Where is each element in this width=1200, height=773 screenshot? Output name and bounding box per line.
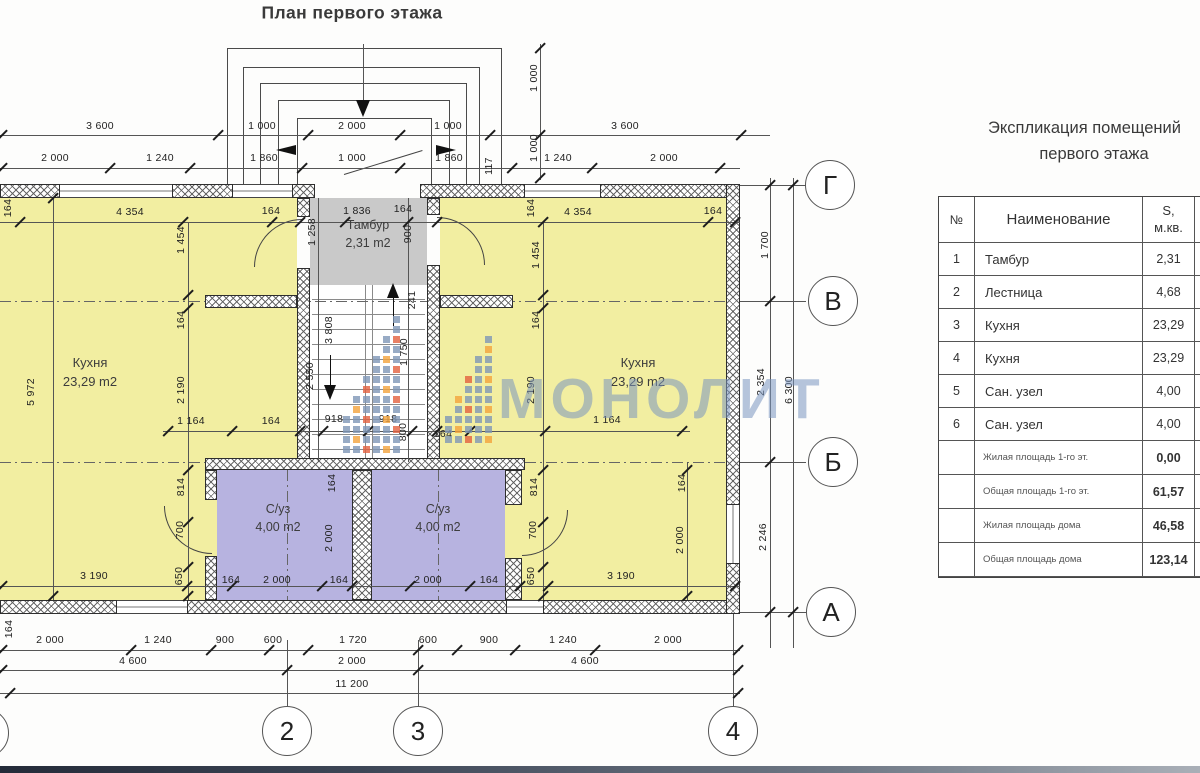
logo-pixel xyxy=(363,446,370,453)
window xyxy=(117,600,187,614)
window xyxy=(60,184,172,198)
dimension-label: 164 xyxy=(262,205,280,217)
dimension-label: 164 xyxy=(525,199,537,217)
summary-num xyxy=(939,475,975,509)
summary-name: Жилая площадь 1-го эт. xyxy=(975,441,1143,475)
logo-pixel xyxy=(485,406,492,413)
dimension-label: 164 xyxy=(175,311,187,329)
room-label-kitchen-left: Кухня 23,29 m2 xyxy=(63,354,117,392)
wall xyxy=(505,558,522,600)
dimension-label: 600 xyxy=(419,634,437,646)
logo-pixel xyxy=(465,396,472,403)
dimension-label: 2 000 xyxy=(654,634,682,646)
dimension-label: 2 190 xyxy=(175,376,187,404)
axis-circle-А: А xyxy=(806,587,856,637)
logo-pixel xyxy=(343,436,350,443)
logo-pixel xyxy=(383,376,390,383)
entrance-axis-line xyxy=(363,44,364,102)
logo-pixel xyxy=(393,396,400,403)
wall xyxy=(440,295,513,308)
dimension-label: 1 860 xyxy=(250,152,278,164)
dimension-label: 164 xyxy=(2,199,14,217)
logo-pixel xyxy=(383,396,390,403)
room-name: С/уз xyxy=(255,500,300,518)
dimension-label: 650 xyxy=(173,567,185,585)
row-num: 2 xyxy=(939,276,975,309)
logo-pixel xyxy=(353,406,360,413)
wall xyxy=(292,184,315,198)
room-label-tambour: Тамбур 2,31 m2 xyxy=(345,216,390,252)
logo-pixel xyxy=(455,416,462,423)
dim-line xyxy=(0,168,740,169)
logo-pixel xyxy=(455,426,462,433)
summary-extra xyxy=(1195,441,1200,475)
dimension-label: 1 836 xyxy=(343,205,371,217)
table-title-line2: первого этажа xyxy=(988,142,1200,168)
logo-pixel xyxy=(475,386,482,393)
logo-pixel xyxy=(383,416,390,423)
axis-line-v xyxy=(0,301,806,302)
wall xyxy=(726,184,740,505)
row-extra xyxy=(1195,342,1200,375)
col-header-area-line2: м.кв. xyxy=(1154,220,1183,236)
logo-pixel xyxy=(343,416,350,423)
axis-circle-partial xyxy=(0,708,9,758)
dimension-label: 4 600 xyxy=(571,655,599,667)
summary-extra xyxy=(1195,543,1200,577)
floor-plan-sheet: План первого этажа xyxy=(0,0,1200,773)
logo-pixel xyxy=(393,366,400,373)
dimension-label: 2 000 xyxy=(674,526,686,554)
table-title: Экспликация помещений первого этажа xyxy=(988,116,1200,167)
row-area: 2,31 xyxy=(1143,243,1195,276)
logo-pixel xyxy=(475,366,482,373)
dimension-label: 2 000 xyxy=(41,152,69,164)
summary-value: 61,57 xyxy=(1143,475,1195,509)
dimension-label: 164 xyxy=(480,574,498,586)
summary-value: 46,58 xyxy=(1143,509,1195,543)
dimension-label: 2 000 xyxy=(338,120,366,132)
dimension-label: 2 246 xyxy=(757,523,769,551)
logo-pixel xyxy=(455,406,462,413)
logo-pixel xyxy=(393,346,400,353)
col-header-name: Наименование xyxy=(975,197,1143,243)
logo-pixel xyxy=(485,386,492,393)
row-area: 23,29 xyxy=(1143,342,1195,375)
room-area: 2,31 m2 xyxy=(345,234,390,252)
dimension-label: 1 454 xyxy=(175,226,187,254)
logo-pixel xyxy=(485,436,492,443)
logo-pixel xyxy=(393,426,400,433)
entrance-arrow-icon xyxy=(356,100,370,117)
logo-pixel xyxy=(383,436,390,443)
logo-pixel xyxy=(353,416,360,423)
dimension-label: 650 xyxy=(525,567,537,585)
dim-line xyxy=(0,586,740,587)
logo-pixel xyxy=(373,356,380,363)
logo-pixel xyxy=(343,446,350,453)
room-name: Кухня xyxy=(63,354,117,373)
row-num: 6 xyxy=(939,408,975,441)
dimension-label: 1 240 xyxy=(549,634,577,646)
dim-line xyxy=(0,135,770,136)
logo-pixel xyxy=(445,416,452,423)
logo-pixel xyxy=(475,426,482,433)
dimension-label: 1 454 xyxy=(530,241,542,269)
logo-pixel xyxy=(475,356,482,363)
row-extra xyxy=(1195,276,1200,309)
dimension-label: 4 600 xyxy=(119,655,147,667)
logo-pixel xyxy=(475,436,482,443)
row-num: 1 xyxy=(939,243,975,276)
logo-pixel xyxy=(373,406,380,413)
dimension-label: 1 240 xyxy=(544,152,572,164)
logo-pixel xyxy=(363,376,370,383)
dimension-label: 241 xyxy=(406,291,418,309)
logo-pixel xyxy=(475,396,482,403)
dimension-label: 1 860 xyxy=(435,152,463,164)
dimension-label: 1 000 xyxy=(528,64,540,92)
window xyxy=(233,184,292,198)
axis-circle-4: 4 xyxy=(708,706,758,756)
axis-circle-3: 3 xyxy=(393,706,443,756)
room-label-bath-left: С/уз 4,00 m2 xyxy=(255,500,300,536)
logo-pixel xyxy=(485,346,492,353)
logo-pixel xyxy=(383,406,390,413)
bottom-strip xyxy=(0,766,1200,773)
wall xyxy=(205,470,217,500)
dimension-label: 700 xyxy=(527,521,539,539)
row-name: Кухня xyxy=(975,342,1143,375)
logo-pixel xyxy=(373,426,380,433)
wall xyxy=(297,198,310,217)
logo-pixel xyxy=(383,446,390,453)
axis-leader xyxy=(740,301,806,302)
logo-pixel xyxy=(383,336,390,343)
axis-circle-Г: Г xyxy=(805,160,855,210)
logo-pixel xyxy=(465,376,472,383)
dimension-label: 164 xyxy=(222,574,240,586)
row-area: 4,00 xyxy=(1143,408,1195,441)
logo-pixel xyxy=(393,446,400,453)
row-area: 4,68 xyxy=(1143,276,1195,309)
row-name: Сан. узел xyxy=(975,408,1143,441)
logo-pixel xyxy=(363,436,370,443)
logo-pixel xyxy=(363,426,370,433)
dim-line xyxy=(0,693,740,694)
axis-circle-2: 2 xyxy=(262,706,312,756)
logo-pixel xyxy=(485,426,492,433)
logo-pixel xyxy=(475,376,482,383)
logo-pixel xyxy=(393,436,400,443)
dim-line xyxy=(188,222,189,600)
logo-pixel xyxy=(393,406,400,413)
dimension-label: 164 xyxy=(262,415,280,427)
row-name: Тамбур xyxy=(975,243,1143,276)
dimension-label: 1 240 xyxy=(144,634,172,646)
summary-name: Общая площадь дома xyxy=(975,543,1143,577)
dimension-label: 164 xyxy=(530,311,542,329)
dimension-label: 600 xyxy=(264,634,282,646)
page-title: План первого этажа xyxy=(262,3,443,24)
row-name: Сан. узел xyxy=(975,375,1143,408)
door-swing-arrow-icon xyxy=(276,145,296,155)
dimension-label: 164 xyxy=(326,474,338,492)
row-area: 4,00 xyxy=(1143,375,1195,408)
dimension-label: 3 190 xyxy=(607,570,635,582)
dimension-label: 2 000 xyxy=(323,524,335,552)
dim-line xyxy=(540,44,541,180)
window xyxy=(507,600,543,614)
dimension-label: 3 600 xyxy=(611,120,639,132)
dimension-label: 3 808 xyxy=(323,316,335,344)
dimension-label: 164 xyxy=(704,205,722,217)
logo-pixel xyxy=(373,396,380,403)
summary-extra xyxy=(1195,475,1200,509)
dimension-label: 2 550 xyxy=(304,362,316,390)
stair-arrow-stem xyxy=(330,355,331,387)
dimension-label: 900 xyxy=(402,225,414,243)
dimension-label: 2 000 xyxy=(338,655,366,667)
logo-pixel xyxy=(363,406,370,413)
room-name: С/уз xyxy=(415,500,460,518)
logo-pixel xyxy=(455,396,462,403)
dim-line xyxy=(0,670,740,671)
dimension-label: 814 xyxy=(175,478,187,496)
summary-extra xyxy=(1195,509,1200,543)
row-area: 23,29 xyxy=(1143,309,1195,342)
wall xyxy=(205,295,297,308)
col-header-num: № xyxy=(939,197,975,243)
logo-pixel xyxy=(465,436,472,443)
dimension-label: 164 xyxy=(330,574,348,586)
dimension-label: 2 000 xyxy=(263,574,291,586)
row-extra xyxy=(1195,243,1200,276)
dimension-label: 164 xyxy=(394,203,412,215)
dimension-label: 3 600 xyxy=(86,120,114,132)
dimension-label: 1 164 xyxy=(177,415,205,427)
dimension-label: 2 000 xyxy=(650,152,678,164)
wall xyxy=(205,556,217,600)
logo-pixel xyxy=(393,356,400,363)
dimension-label: 1 000 xyxy=(248,120,276,132)
logo-pixel xyxy=(485,356,492,363)
dimension-label: 164 xyxy=(676,474,688,492)
row-name: Лестница xyxy=(975,276,1143,309)
logo-pixel xyxy=(363,386,370,393)
wall xyxy=(0,600,117,614)
dimension-label: 5 972 xyxy=(25,378,37,406)
logo-pixel xyxy=(475,406,482,413)
dimension-label: 4 354 xyxy=(564,206,592,218)
logo-pixel xyxy=(373,376,380,383)
logo-pixel xyxy=(383,356,390,363)
dimension-label: 3 190 xyxy=(80,570,108,582)
col-header-area-line1: S, xyxy=(1162,203,1174,219)
wall xyxy=(600,184,740,198)
dimension-label: 1 720 xyxy=(339,634,367,646)
axis-circle-Б: Б xyxy=(808,437,858,487)
logo-pixel xyxy=(393,416,400,423)
axis-line-a xyxy=(740,612,806,613)
dimension-label: 117 xyxy=(483,157,495,175)
dimension-label: 700 xyxy=(174,521,186,539)
room-area: 23,29 m2 xyxy=(63,373,117,392)
logo-pixel xyxy=(373,436,380,443)
summary-num xyxy=(939,543,975,577)
room-label-bath-right: С/уз 4,00 m2 xyxy=(415,500,460,536)
room-schedule-table: № Наименование S, м.кв. 1Тамбур2,312Лест… xyxy=(938,196,1200,578)
logo-pixel xyxy=(465,416,472,423)
dim-line xyxy=(318,198,319,462)
row-num: 5 xyxy=(939,375,975,408)
logo-pixel xyxy=(485,396,492,403)
logo-pixel xyxy=(465,386,472,393)
dimension-label: 814 xyxy=(528,478,540,496)
logo-pixel xyxy=(383,426,390,433)
room-area: 4,00 m2 xyxy=(255,518,300,536)
logo-pixel xyxy=(383,366,390,373)
dimension-label: 1 000 xyxy=(434,120,462,132)
wall xyxy=(505,470,522,505)
window xyxy=(726,505,740,563)
room-name: Тамбур xyxy=(345,216,390,234)
dimension-label: 11 200 xyxy=(335,678,368,690)
row-extra xyxy=(1195,309,1200,342)
row-extra xyxy=(1195,375,1200,408)
col-header-area: S, м.кв. xyxy=(1143,197,1195,243)
dimension-label: 164 xyxy=(3,620,15,638)
logo-pixel xyxy=(353,436,360,443)
logo-pixel xyxy=(455,436,462,443)
logo-pixel xyxy=(363,396,370,403)
logo-pixel xyxy=(393,316,400,323)
logo-pixel xyxy=(373,446,380,453)
dimension-label: 1 240 xyxy=(146,152,174,164)
logo-pixel xyxy=(485,336,492,343)
summary-value: 123,14 xyxy=(1143,543,1195,577)
dim-line xyxy=(0,650,740,651)
dimension-label: 1 000 xyxy=(528,134,540,162)
axis-circle-В: В xyxy=(808,276,858,326)
watermark-text: МОНОЛИТ xyxy=(498,366,825,432)
row-num: 3 xyxy=(939,309,975,342)
axis-leader xyxy=(740,462,806,463)
logo-pixel xyxy=(373,386,380,393)
stair-down-arrow-icon xyxy=(324,385,336,400)
row-name: Кухня xyxy=(975,309,1143,342)
logo-pixel xyxy=(485,376,492,383)
logo-pixel xyxy=(353,446,360,453)
wall xyxy=(420,184,525,198)
dimension-label: 900 xyxy=(480,634,498,646)
logo-pixel xyxy=(393,386,400,393)
logo-pixel xyxy=(465,426,472,433)
wall xyxy=(205,458,525,470)
dimension-label: 2 000 xyxy=(36,634,64,646)
logo-pixel xyxy=(475,416,482,423)
dimension-label: 900 xyxy=(216,634,234,646)
logo-pixel xyxy=(363,416,370,423)
axis-line-g xyxy=(740,185,806,186)
summary-num xyxy=(939,441,975,475)
logo-pixel xyxy=(485,366,492,373)
summary-num xyxy=(939,509,975,543)
dimension-label: 918 xyxy=(325,413,343,425)
logo-pixel xyxy=(393,326,400,333)
dimension-label: 1 000 xyxy=(338,152,366,164)
logo-pixel xyxy=(373,416,380,423)
logo-pixel xyxy=(393,376,400,383)
wall xyxy=(543,600,740,614)
row-num: 4 xyxy=(939,342,975,375)
dimension-label: 1 258 xyxy=(306,218,318,246)
summary-name: Общая площадь 1-го эт. xyxy=(975,475,1143,509)
logo-pixel xyxy=(393,336,400,343)
row-extra xyxy=(1195,408,1200,441)
logo-pixel xyxy=(373,366,380,373)
logo-pixel xyxy=(445,426,452,433)
logo-pixel xyxy=(465,406,472,413)
table-title-line1: Экспликация помещений xyxy=(988,116,1200,142)
logo-pixel xyxy=(383,386,390,393)
col-header-extra xyxy=(1195,197,1200,243)
dim-line xyxy=(53,198,54,600)
logo-pixel xyxy=(383,346,390,353)
dimension-label: 1 700 xyxy=(759,231,771,259)
wall xyxy=(0,184,60,198)
room-area: 4,00 m2 xyxy=(415,518,460,536)
wall xyxy=(427,198,440,215)
logo-pixel xyxy=(445,436,452,443)
summary-name: Жилая площадь дома xyxy=(975,509,1143,543)
wall xyxy=(172,184,233,198)
summary-value: 0,00 xyxy=(1143,441,1195,475)
window xyxy=(525,184,600,198)
wall xyxy=(187,600,507,614)
logo-pixel xyxy=(353,426,360,433)
logo-pixel xyxy=(485,416,492,423)
dimension-label: 4 354 xyxy=(116,206,144,218)
dimension-label: 2 000 xyxy=(414,574,442,586)
logo-pixel xyxy=(353,396,360,403)
logo-pixel xyxy=(343,426,350,433)
